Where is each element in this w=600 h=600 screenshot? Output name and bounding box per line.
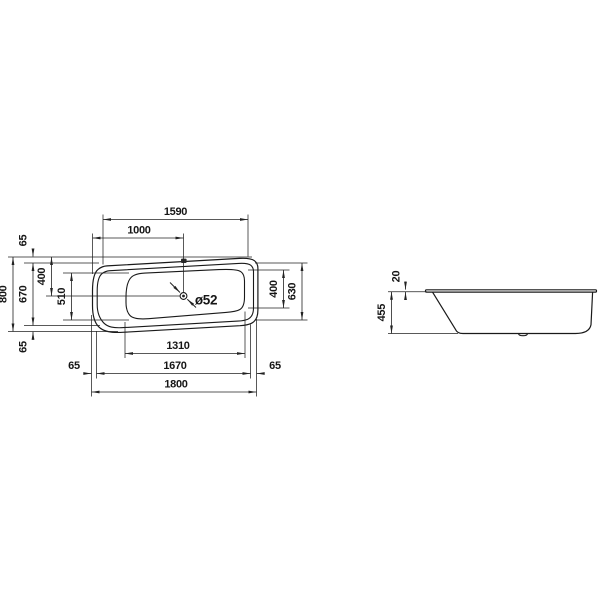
technical-drawing: 1590100013101670180080067040051040063045… (0, 0, 600, 600)
arrowhead (390, 292, 393, 300)
arrowhead (125, 352, 133, 355)
arrowhead (257, 372, 265, 375)
arrowhead (237, 352, 245, 355)
arrowhead (282, 270, 285, 278)
arrowhead (243, 372, 251, 375)
plan-view (93, 258, 258, 332)
drain-symbol (180, 293, 187, 300)
dim-label: 455 (376, 304, 388, 322)
arrowhead (32, 249, 35, 257)
dim-label: 20 (391, 271, 403, 283)
dim-455: 455 (376, 292, 393, 334)
dim-label: 800 (0, 285, 10, 303)
dim-510: 510 (56, 273, 73, 320)
dim-label: 65 (18, 235, 30, 247)
dim-1590: 1590 (103, 206, 248, 221)
side-body (433, 292, 593, 333)
dim-label: 1590 (164, 206, 187, 218)
arrowhead (70, 273, 73, 281)
arrowhead (32, 332, 35, 340)
arrowhead (249, 391, 257, 394)
dim-label: 65 (68, 360, 80, 372)
dim-label: 1800 (164, 379, 187, 391)
dim-20: 20 (391, 271, 407, 300)
arrowhead (103, 218, 111, 221)
arrowhead (97, 372, 105, 375)
arrowhead (32, 263, 35, 271)
arrowhead (50, 288, 53, 296)
dim-label: 630 (287, 283, 299, 301)
arrowhead (93, 237, 101, 240)
arrowhead (282, 300, 285, 308)
dim-label: 1670 (163, 360, 186, 372)
arrowhead (92, 391, 100, 394)
dim-label: 1310 (166, 340, 189, 352)
dim-label: 400 (36, 268, 48, 286)
arrowhead (301, 263, 304, 271)
arrowhead (404, 282, 407, 290)
dim-1670: 1670 (97, 360, 251, 375)
arrowhead (404, 292, 407, 300)
dim-65: 65 (68, 360, 91, 375)
dim-670: 670 (18, 263, 35, 326)
dim-label: 65 (269, 360, 281, 372)
side-view (426, 290, 597, 336)
arrowhead (70, 312, 73, 320)
drawing-page: 1590100013101670180080067040051040063045… (0, 0, 600, 600)
arrowhead (12, 324, 15, 332)
arrowhead (12, 257, 15, 265)
arrowhead (240, 218, 248, 221)
dim-label: 65 (18, 341, 30, 353)
dim-1000: 1000 (93, 225, 184, 240)
dim-label: ø52 (195, 293, 217, 308)
dim-label: 400 (268, 280, 280, 298)
side-rim (426, 290, 597, 292)
arrowhead (83, 372, 91, 375)
dim-65: 65 (18, 332, 35, 353)
dim-1800: 1800 (92, 379, 257, 394)
arrowhead (50, 257, 53, 265)
dim-label: 510 (56, 288, 68, 306)
dim-65: 65 (18, 235, 35, 257)
arrowhead (390, 326, 393, 334)
drain-inner-circle (182, 295, 185, 298)
arrowhead (187, 299, 194, 306)
dim-65: 65 (257, 360, 281, 375)
dim-630: 630 (287, 263, 304, 320)
dim-label: 1000 (127, 225, 150, 237)
dimensions: 1590100013101670180080067040051040063045… (0, 206, 407, 393)
arrowhead (176, 237, 184, 240)
dim-800: 800 (0, 257, 14, 332)
arrowhead (32, 318, 35, 326)
dim-400: 400 (268, 270, 285, 308)
dim-label: 670 (18, 285, 30, 303)
dim-1310: 1310 (125, 340, 245, 355)
leader-drain-diameter: ø52 (170, 283, 217, 308)
arrowhead (173, 286, 180, 293)
arrowhead (301, 312, 304, 320)
